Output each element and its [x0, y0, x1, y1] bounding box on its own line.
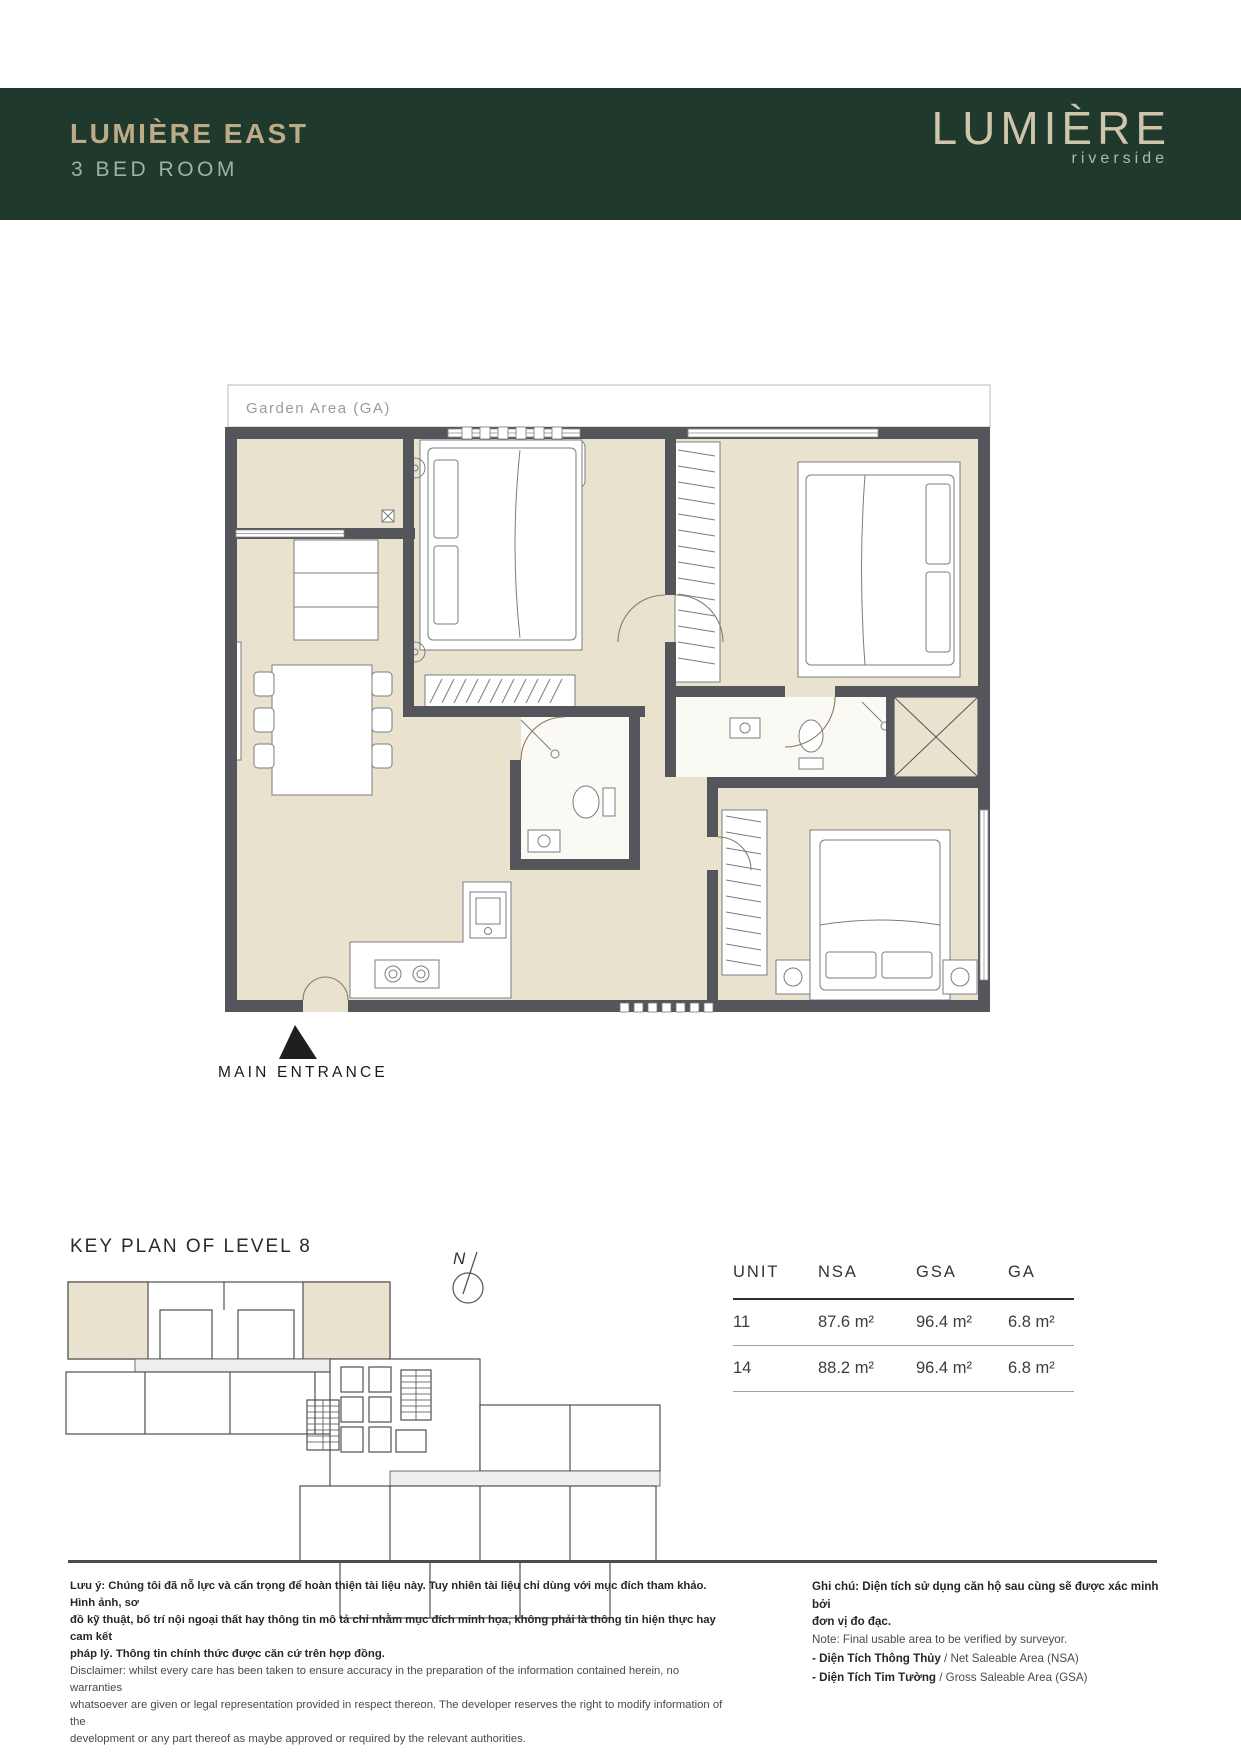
- nightstand: [776, 960, 810, 994]
- sink-1: [528, 830, 560, 852]
- compass: N: [453, 1249, 483, 1303]
- cell-ga: 6.8 m²: [1008, 1359, 1074, 1378]
- col-gsa: GSA: [916, 1263, 1008, 1282]
- cell-unit: 11: [733, 1313, 818, 1332]
- cell-nsa: 87.6 m²: [818, 1313, 916, 1332]
- floor-plan-drawing: Garden Area (GA): [210, 380, 1000, 1095]
- legend-gsa-en: / Gross Saleable Area (GSA): [939, 1671, 1087, 1684]
- wardrobe-1: [425, 675, 575, 707]
- brochure-page: LUMIÈRE EAST 3 BED ROOM LUMIÈRE riversid…: [0, 0, 1241, 1754]
- kitchen-sink: [470, 892, 506, 938]
- cell-gsa: 96.4 m²: [916, 1359, 1008, 1378]
- cell-gsa: 96.4 m²: [916, 1313, 1008, 1332]
- bed-3: [810, 830, 950, 1000]
- legend-item-nsa: - Diện Tích Thông Thủy / Net Saleable Ar…: [812, 1650, 1164, 1668]
- stove: [375, 960, 439, 988]
- page-subtitle: 3 BED ROOM: [71, 158, 238, 182]
- closet-2: [675, 442, 720, 682]
- cell-ga: 6.8 m²: [1008, 1313, 1074, 1332]
- sofa: [294, 540, 378, 640]
- highlighted-unit-14: [303, 1282, 390, 1359]
- highlighted-unit-11: [68, 1282, 148, 1359]
- bathroom-2-floor: [676, 697, 886, 777]
- main-entrance-marker: [279, 1025, 317, 1059]
- wardrobe-3: [722, 810, 767, 975]
- header-bar: LUMIÈRE EAST 3 BED ROOM LUMIÈRE riversid…: [0, 88, 1241, 220]
- table-header: UNIT NSA GSA GA: [733, 1263, 1074, 1300]
- keyplan-lower-band-a: [300, 1486, 656, 1562]
- table-row: 11 87.6 m² 96.4 m² 6.8 m²: [733, 1300, 1074, 1346]
- cell-nsa: 88.2 m²: [818, 1359, 916, 1378]
- keyplan-corridor-2: [390, 1471, 660, 1486]
- brand-logo: LUMIÈRE riverside: [932, 104, 1171, 168]
- brand-logo-name: LUMIÈRE: [932, 104, 1171, 152]
- toilet-1: [573, 786, 615, 818]
- disclaimer-english: Disclaimer: whilst every care has been t…: [70, 1663, 730, 1748]
- compass-label: N: [453, 1249, 466, 1268]
- col-unit: UNIT: [733, 1263, 818, 1282]
- col-nsa: NSA: [818, 1263, 916, 1282]
- legend-item-gsa: - Diện Tích Tim Tường / Gross Saleable A…: [812, 1669, 1164, 1687]
- sink-2: [730, 718, 760, 738]
- bed-1: [420, 440, 582, 650]
- page-title: LUMIÈRE EAST: [70, 118, 308, 150]
- area-table: UNIT NSA GSA GA 11 87.6 m² 96.4 m² 6.8 m…: [733, 1263, 1074, 1392]
- main-entrance-label: MAIN ENTRANCE: [218, 1064, 388, 1082]
- legend-nsa-vi: - Diện Tích Thông Thủy: [812, 1652, 941, 1665]
- garden-area-bar: Garden Area (GA): [228, 385, 990, 427]
- footer-divider: [68, 1560, 1157, 1563]
- bed-2: [798, 462, 960, 677]
- disclaimer-vietnamese: Lưu ý: Chúng tôi đã nỗ lực và cẩn trọng …: [70, 1578, 730, 1663]
- table-row: 14 88.2 m² 96.4 m² 6.8 m²: [733, 1346, 1074, 1392]
- legend-nsa-en: / Net Saleable Area (NSA): [944, 1652, 1079, 1665]
- footer-legend: Ghi chú: Diện tích sử dụng căn hộ sau cù…: [812, 1578, 1164, 1686]
- legend-gsa-vi: - Diện Tích Tim Tường: [812, 1671, 936, 1684]
- dining-table: [254, 665, 392, 795]
- cell-unit: 14: [733, 1359, 818, 1378]
- garden-area-label: Garden Area (GA): [246, 400, 391, 417]
- footer-disclaimer: Lưu ý: Chúng tôi đã nỗ lực và cẩn trọng …: [70, 1578, 730, 1748]
- col-ga: GA: [1008, 1263, 1074, 1282]
- legend-note: Note: Final usable area to be verified b…: [812, 1631, 1164, 1649]
- nightstand: [943, 960, 977, 994]
- legend-vietnamese: Ghi chú: Diện tích sử dụng căn hộ sau cù…: [812, 1578, 1164, 1631]
